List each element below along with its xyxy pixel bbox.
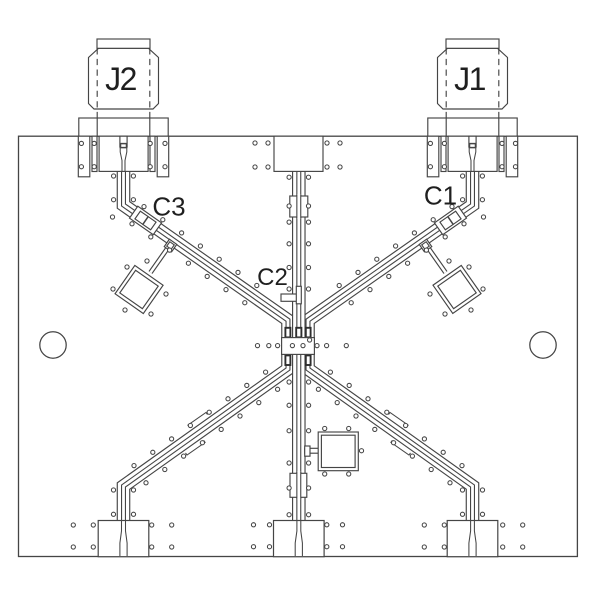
svg-text:J1: J1 [454,61,486,97]
svg-text:C3: C3 [152,192,185,222]
svg-text:C1: C1 [424,181,457,211]
svg-text:C2: C2 [257,264,288,291]
svg-text:J2: J2 [105,61,137,97]
